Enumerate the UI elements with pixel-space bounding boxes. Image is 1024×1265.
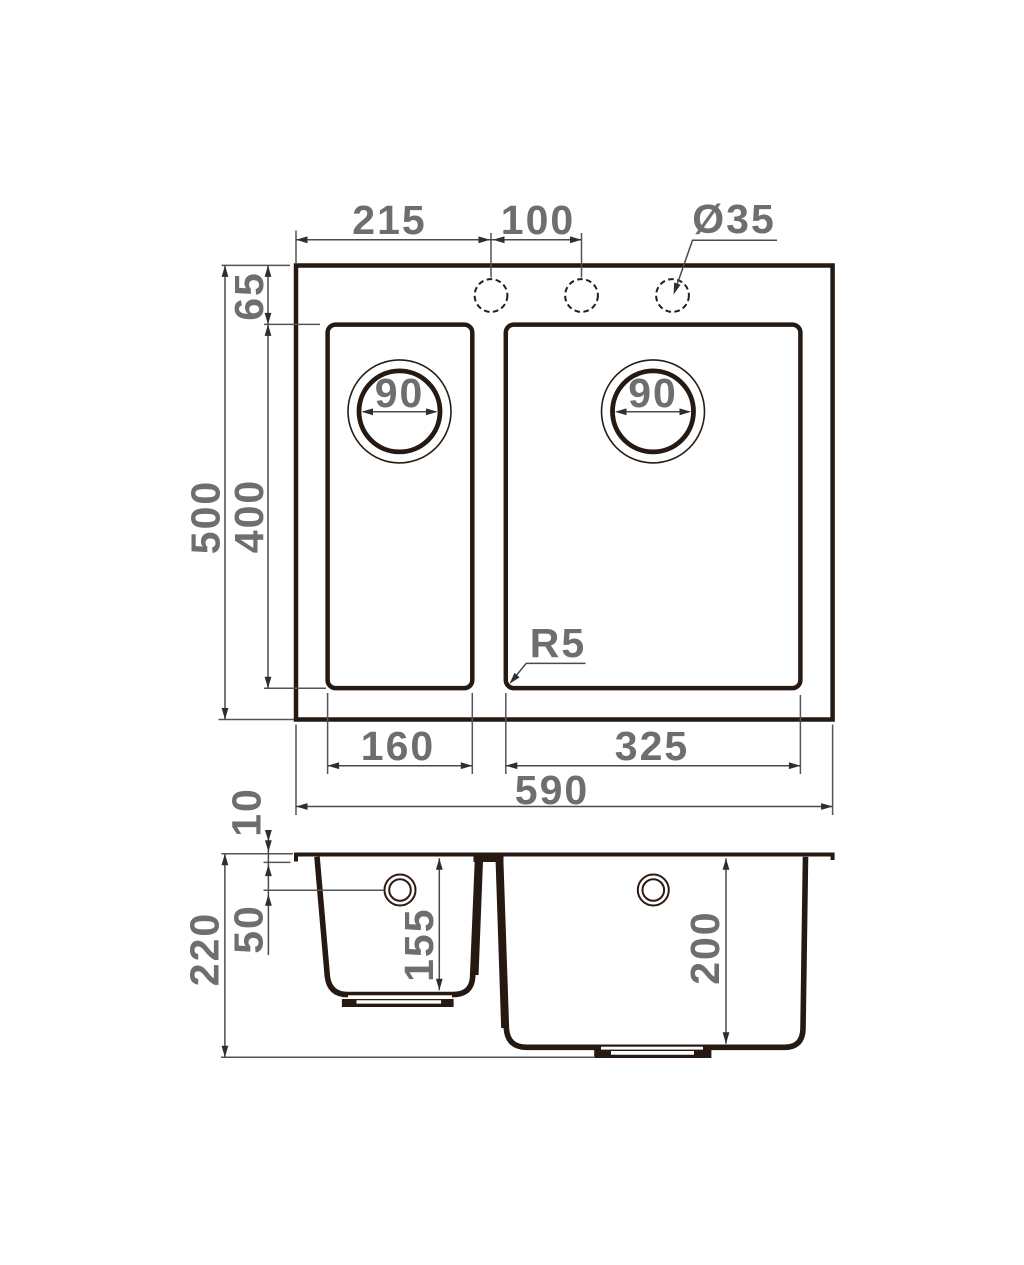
svg-text:10: 10 [224, 787, 270, 837]
svg-text:90: 90 [628, 370, 678, 416]
svg-text:160: 160 [361, 723, 435, 769]
svg-text:Ø35: Ø35 [692, 196, 776, 242]
svg-text:400: 400 [226, 479, 272, 553]
svg-text:325: 325 [615, 723, 689, 769]
svg-text:100: 100 [501, 197, 575, 243]
svg-text:500: 500 [183, 480, 229, 554]
svg-text:65: 65 [226, 271, 272, 321]
svg-text:R5: R5 [530, 620, 586, 666]
svg-text:220: 220 [182, 912, 228, 986]
svg-text:215: 215 [352, 197, 426, 243]
svg-text:50: 50 [226, 904, 272, 954]
svg-text:90: 90 [375, 370, 425, 416]
svg-text:200: 200 [682, 910, 728, 984]
svg-text:155: 155 [396, 907, 442, 981]
svg-text:590: 590 [515, 767, 589, 813]
